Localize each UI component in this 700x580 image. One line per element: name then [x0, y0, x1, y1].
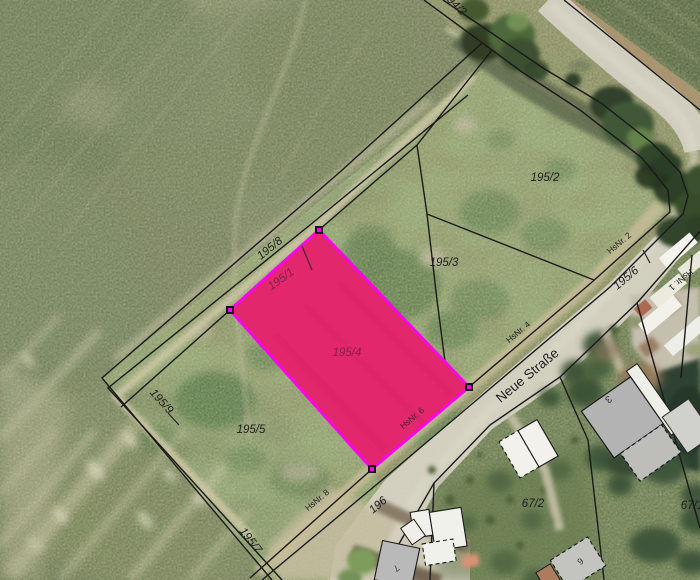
svg-text:195/5: 195/5: [237, 424, 266, 436]
svg-text:195/4: 195/4: [333, 347, 362, 359]
svg-text:67/2: 67/2: [522, 498, 545, 510]
svg-text:195/3: 195/3: [430, 257, 459, 269]
svg-text:195/2: 195/2: [531, 172, 560, 184]
svg-text:67/1: 67/1: [681, 500, 700, 512]
